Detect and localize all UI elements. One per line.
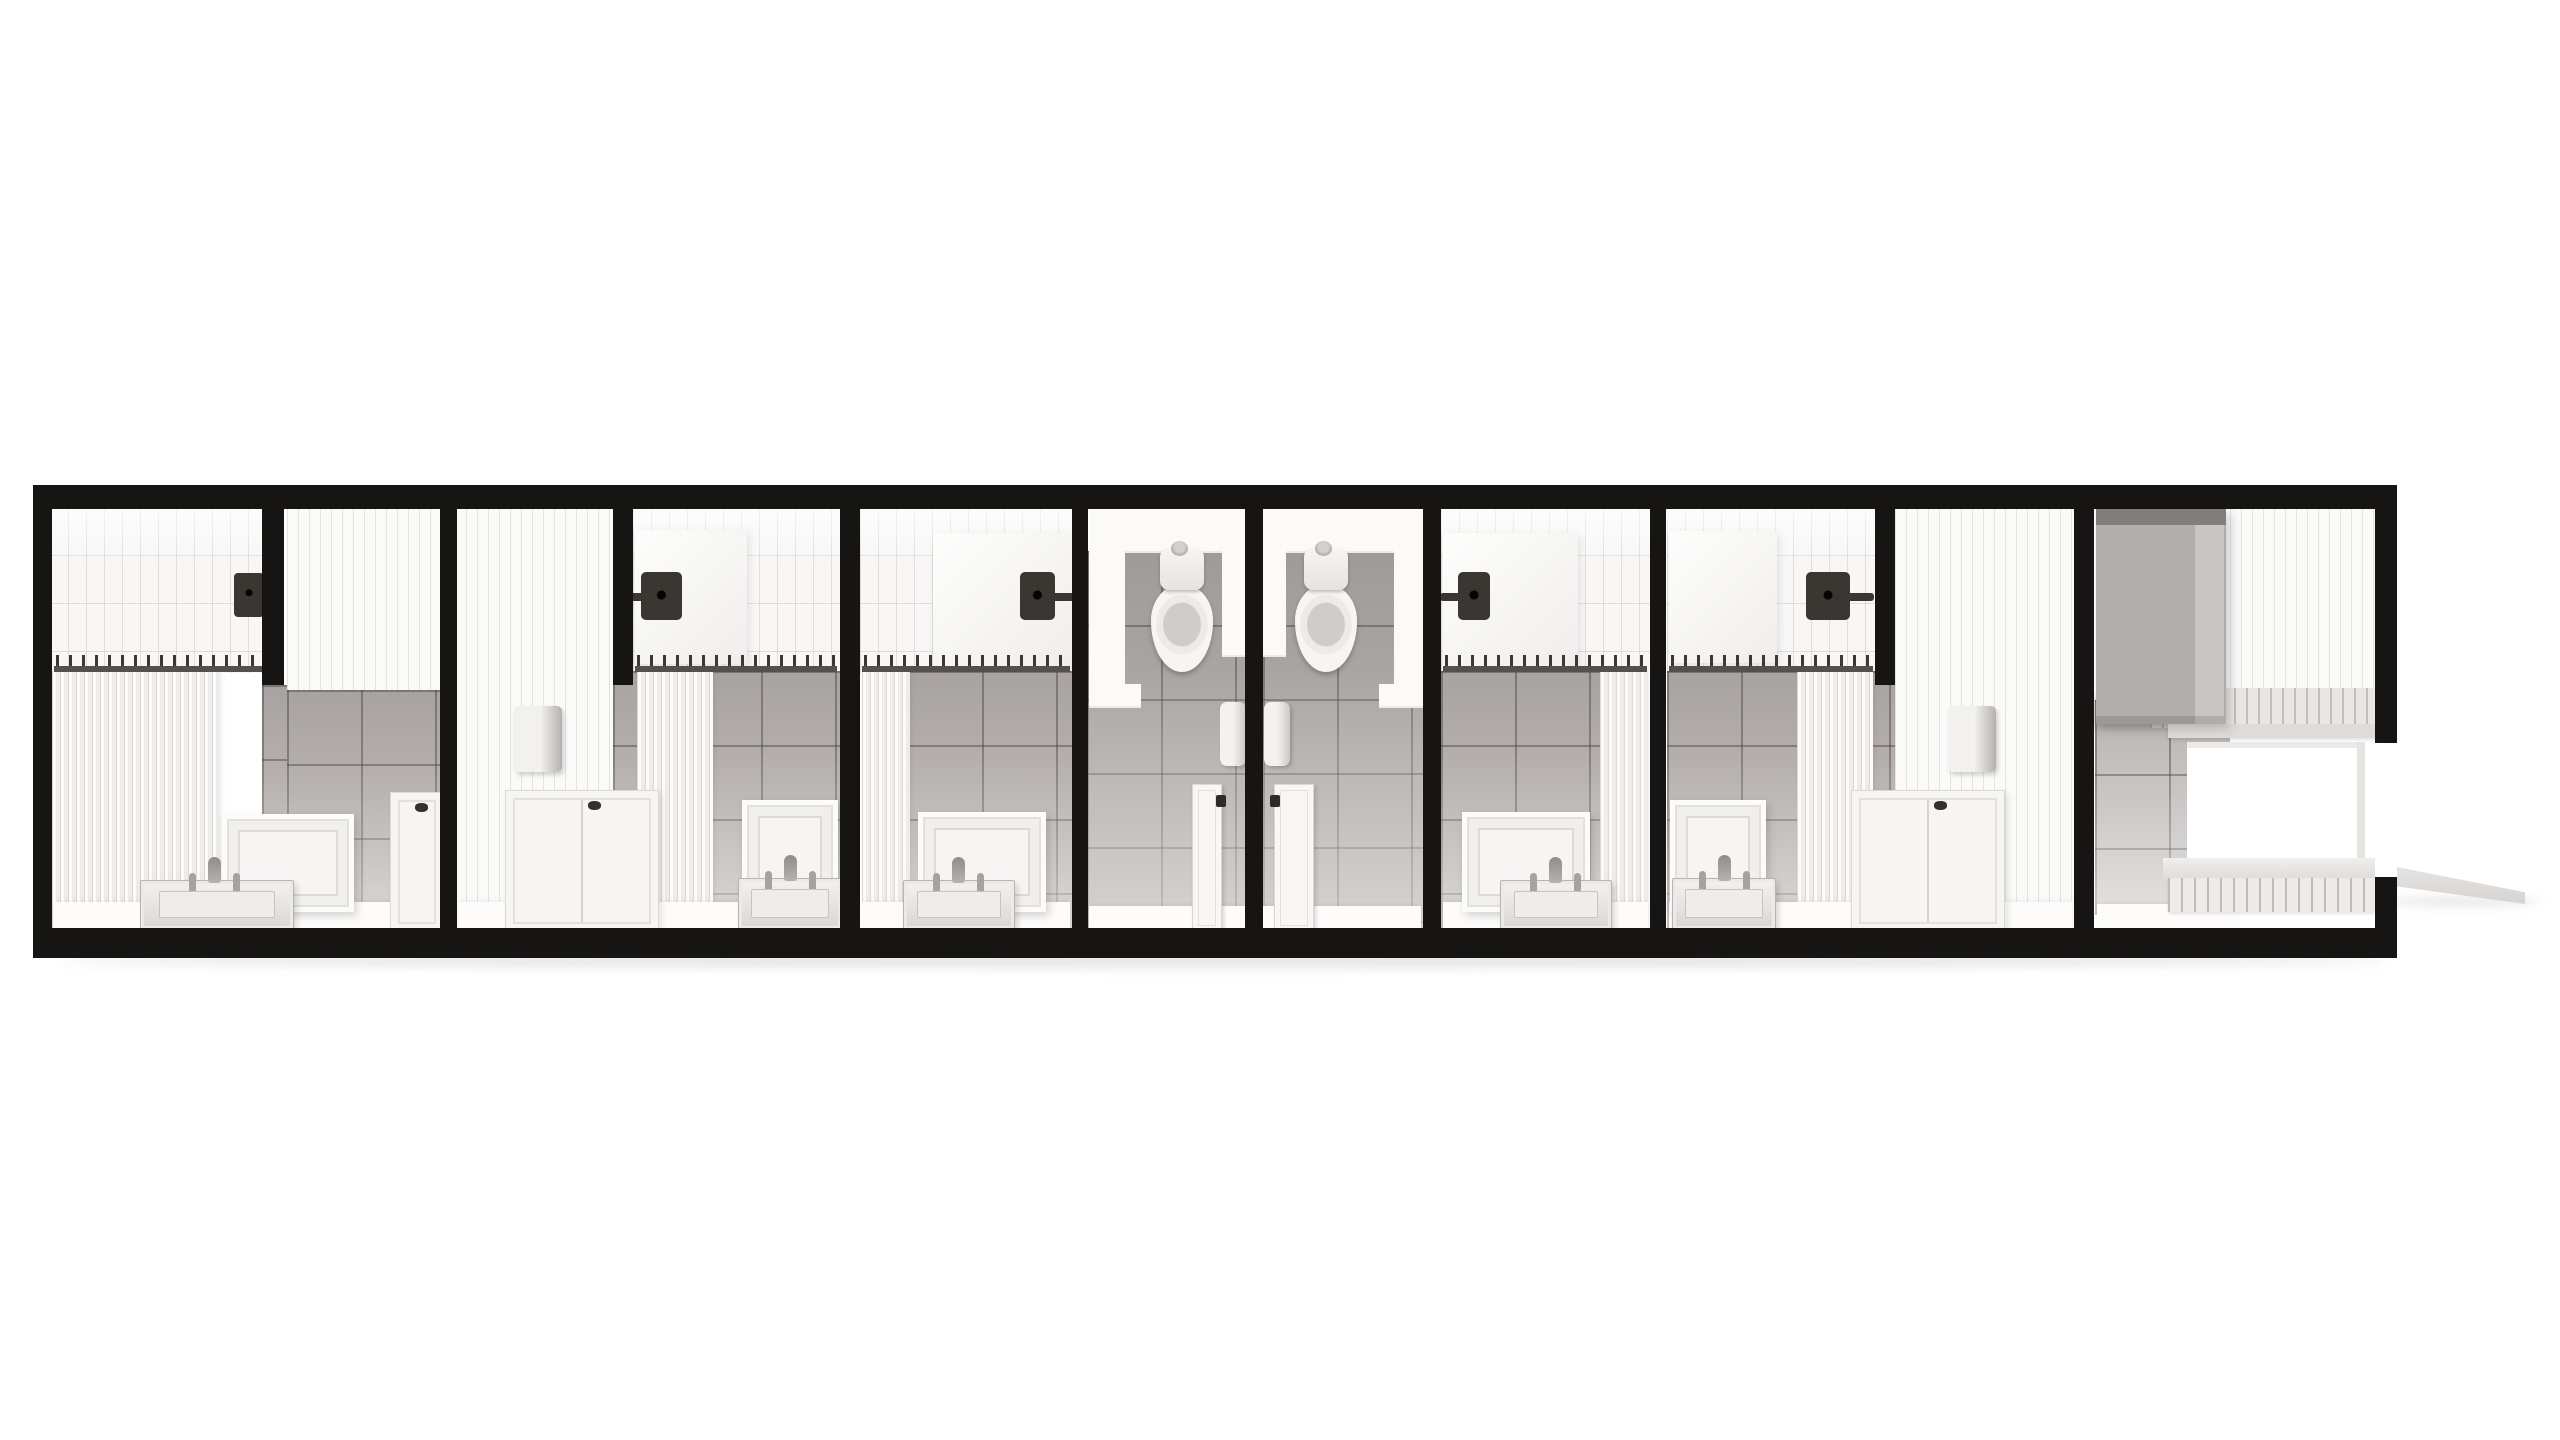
suite2-sink <box>738 878 842 930</box>
shower1-head-icon <box>234 573 264 617</box>
stall1-alcove-jamb-left <box>1089 509 1125 703</box>
half-wall-2 <box>613 503 633 685</box>
suite4-cabinet <box>1851 790 2005 932</box>
shower5-surround <box>1669 531 1777 663</box>
shower3-head-icon <box>1020 572 1074 620</box>
stall1-jamb-foot <box>1089 684 1141 708</box>
partition-wall-3 <box>1072 503 1088 930</box>
stall2-toilet-tank <box>1304 548 1348 590</box>
stall1-paper-dispenser <box>1220 702 1246 766</box>
suite4-sink <box>1672 878 1776 930</box>
partition-wall-4 <box>1245 503 1263 930</box>
unit-frame-right-upper <box>2375 485 2397 743</box>
partition-wall-7 <box>2074 503 2094 930</box>
partition-wall-5 <box>1423 503 1441 930</box>
unit-frame-top <box>33 485 2397 509</box>
stall1-door <box>1192 784 1222 932</box>
stall2-paper-dispenser <box>1264 702 1290 766</box>
stall2-door <box>1274 784 1314 932</box>
shower3-sink <box>903 880 1015 930</box>
shower3-curtain-rod <box>862 655 1070 674</box>
unit-frame-right-lower <box>2375 877 2397 958</box>
shower5-head-icon <box>1806 572 1874 620</box>
unit-frame-bottom <box>33 928 2397 958</box>
shower4-sink <box>1500 880 1612 930</box>
shower4-head-icon <box>1440 572 1490 620</box>
vestibule-ledge <box>2168 724 2377 738</box>
half-wall-1 <box>262 503 284 685</box>
suite4-hand-dryer <box>1948 706 1996 772</box>
shower1-curtain-rod <box>54 655 262 674</box>
suite2-cabinet <box>505 790 659 932</box>
partition-wall-1 <box>440 503 457 930</box>
suite1-sink <box>140 880 294 930</box>
shower4-curtain-rod <box>1443 655 1647 674</box>
partition-wall-2 <box>840 503 860 930</box>
water-heater-cabinet <box>2096 509 2226 724</box>
scene <box>0 0 2560 1440</box>
stall1-alcove-jamb-right <box>1222 509 1245 657</box>
stall2-alcove-jamb-left <box>1263 509 1286 657</box>
suite1-cabinet <box>390 792 444 932</box>
stall1-toilet-tank <box>1160 548 1204 590</box>
shower5-curtain-rod <box>1669 655 1873 674</box>
shower2-curtain-rod <box>635 655 837 674</box>
unit-frame-left <box>33 485 52 958</box>
partition-wall-6 <box>1650 503 1666 930</box>
suite2-hand-dryer <box>514 706 562 772</box>
half-wall-3 <box>1875 503 1895 685</box>
vestibule-step-slats <box>2168 878 2375 912</box>
